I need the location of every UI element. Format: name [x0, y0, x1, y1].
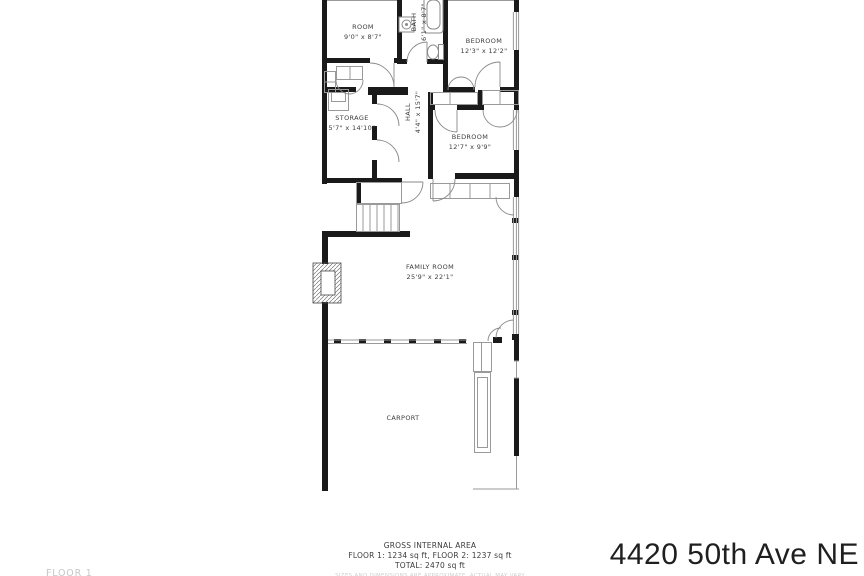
room-label-bedroom-1: BEDROOM 12'3" x 12'2": [461, 36, 508, 56]
stairs: [357, 205, 400, 232]
room-name: STORAGE: [329, 113, 376, 123]
floor-number-label: FLOOR 1: [46, 568, 93, 576]
walls-layer: [322, 0, 519, 491]
room-label-family-room: FAMILY ROOM 25'9" x 22'1": [406, 262, 454, 282]
area-summary-floors: FLOOR 1: 1234 sq ft, FLOOR 2: 1237 sq ft: [335, 551, 525, 561]
room-label-hall: HALL 4'4" x 15'7": [403, 91, 423, 133]
room-label-bath: BATH 6'1" x 8'7": [409, 3, 429, 41]
room-name: BATH: [409, 3, 419, 41]
floor-plan-drawing: [0, 0, 864, 576]
room-label-carport: CARPORT: [386, 413, 419, 423]
room-name: ROOM: [344, 22, 382, 32]
floor-plan-canvas: ROOM 9'0" x 8'7" BATH 6'1" x 8'7" BEDROO…: [0, 0, 864, 576]
room-dims: 6'1" x 8'7": [419, 3, 429, 41]
room-label-room: ROOM 9'0" x 8'7": [344, 22, 382, 42]
room-dims: 4'4" x 15'7": [413, 91, 423, 133]
room-name: CARPORT: [386, 413, 419, 423]
area-summary-total: TOTAL: 2470 sq ft: [335, 561, 525, 571]
room-dims: 12'7" x 9'9": [449, 142, 491, 152]
room-name: FAMILY ROOM: [406, 262, 454, 272]
room-name: HALL: [403, 91, 413, 133]
room-label-storage: STORAGE 5'7" x 14'10": [329, 113, 376, 133]
room-dims: 9'0" x 8'7": [344, 32, 382, 42]
thin-lines-layer: [325, 1, 520, 490]
address-title: 4420 50th Ave NE: [610, 538, 859, 572]
area-summary-heading: GROSS INTERNAL AREA: [335, 541, 525, 551]
room-dims: 25'9" x 22'1": [406, 272, 454, 282]
room-dims: 12'3" x 12'2": [461, 46, 508, 56]
room-name: BEDROOM: [461, 36, 508, 46]
toilet-icon: [428, 45, 444, 60]
room-dims: 5'7" x 14'10": [329, 123, 376, 133]
room-name: BEDROOM: [449, 132, 491, 142]
fireplace: [313, 263, 341, 303]
room-label-bedroom-2: BEDROOM 12'7" x 9'9": [449, 132, 491, 152]
area-summary: GROSS INTERNAL AREA FLOOR 1: 1234 sq ft,…: [335, 541, 525, 576]
